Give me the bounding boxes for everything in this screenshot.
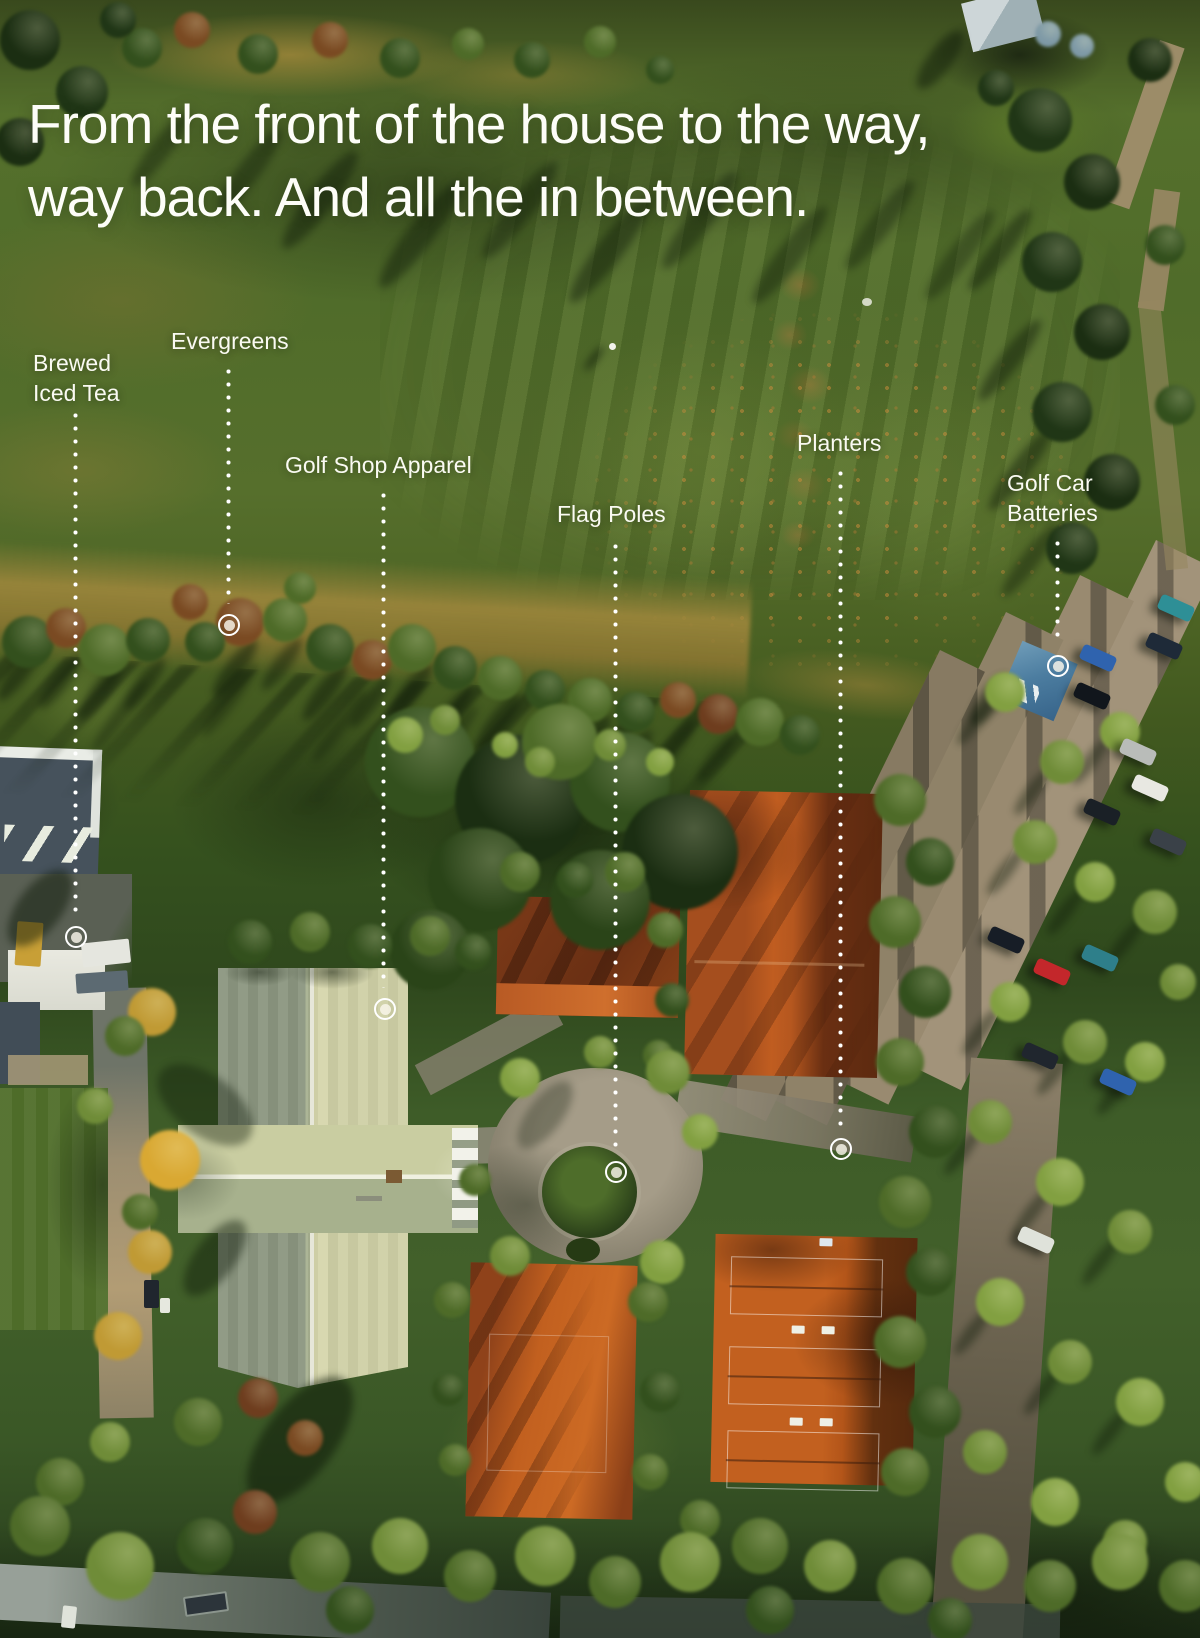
parked-car — [1032, 957, 1071, 986]
callout-marker — [65, 926, 87, 948]
callout-dotted-line — [838, 470, 843, 1128]
headline-line-2: way back. And all the in between. — [28, 161, 930, 234]
parked-car — [1072, 681, 1111, 710]
parked-car — [1098, 1067, 1137, 1096]
callout-marker — [830, 1138, 852, 1160]
parked-car — [1020, 1041, 1059, 1070]
callout-dotted-line — [613, 543, 618, 1151]
callout-label-line: Batteries — [1007, 498, 1098, 528]
callout-label-line: Evergreens — [171, 326, 289, 356]
callout-label: Evergreens — [171, 326, 289, 356]
callout-label: Brewed Iced Tea — [33, 348, 120, 408]
callout-label: Golf Car Batteries — [1007, 468, 1098, 528]
callout-dotted-line — [1055, 540, 1060, 645]
callout-dotted-line — [226, 368, 231, 604]
callout-label: Golf Shop Apparel — [285, 450, 472, 480]
hero-photo: From the front of the house to the way, … — [0, 0, 1200, 1638]
callout-dotted-line — [381, 492, 386, 988]
parked-car — [986, 925, 1025, 954]
callout-label-line: Flag Poles — [557, 499, 666, 529]
headline-line-1: From the front of the house to the way, — [28, 88, 930, 161]
callout-marker — [374, 998, 396, 1020]
callout-label-line: Brewed — [33, 348, 120, 378]
parked-car — [1148, 827, 1187, 856]
parked-car — [1130, 773, 1169, 802]
parked-car — [1078, 643, 1117, 672]
callout-label-line: Planters — [797, 428, 881, 458]
parked-car — [1118, 737, 1157, 766]
callout-marker — [1047, 655, 1069, 677]
parked-car — [1016, 1225, 1055, 1254]
callout-label-line: Golf Car — [1007, 468, 1098, 498]
parked-car — [1144, 631, 1183, 660]
callout-marker — [605, 1161, 627, 1183]
golfer-figure — [609, 343, 616, 350]
callout-marker — [218, 614, 240, 636]
parked-car — [1156, 593, 1195, 622]
callout-dotted-line — [73, 412, 78, 916]
callout-label-line: Golf Shop Apparel — [285, 450, 472, 480]
callout-label: Planters — [797, 428, 881, 458]
callout-label-line: Iced Tea — [33, 378, 120, 408]
headline: From the front of the house to the way, … — [28, 88, 930, 234]
parked-car — [1082, 797, 1121, 826]
golf-cart-far — [862, 298, 872, 306]
callout-label: Flag Poles — [557, 499, 666, 529]
parked-cars-layer — [0, 0, 1200, 1638]
parked-car — [1080, 943, 1119, 972]
